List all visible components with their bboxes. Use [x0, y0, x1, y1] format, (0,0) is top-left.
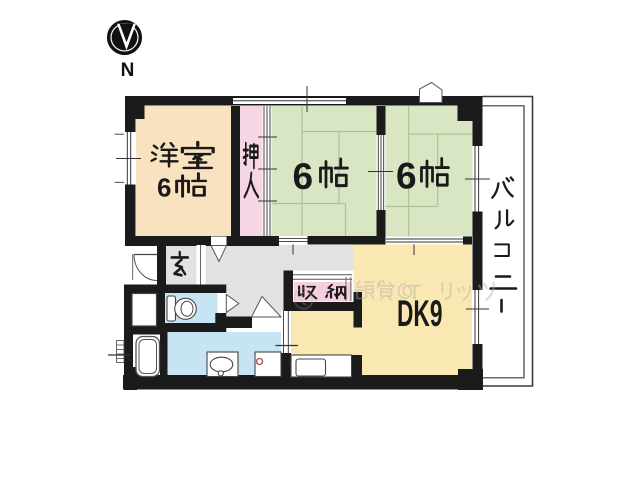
svg-text:6: 6	[396, 156, 417, 197]
svg-text:6: 6	[157, 173, 171, 203]
svg-text:T: T	[408, 281, 421, 304]
svg-text:N: N	[121, 60, 135, 81]
svg-text:6: 6	[293, 156, 314, 197]
